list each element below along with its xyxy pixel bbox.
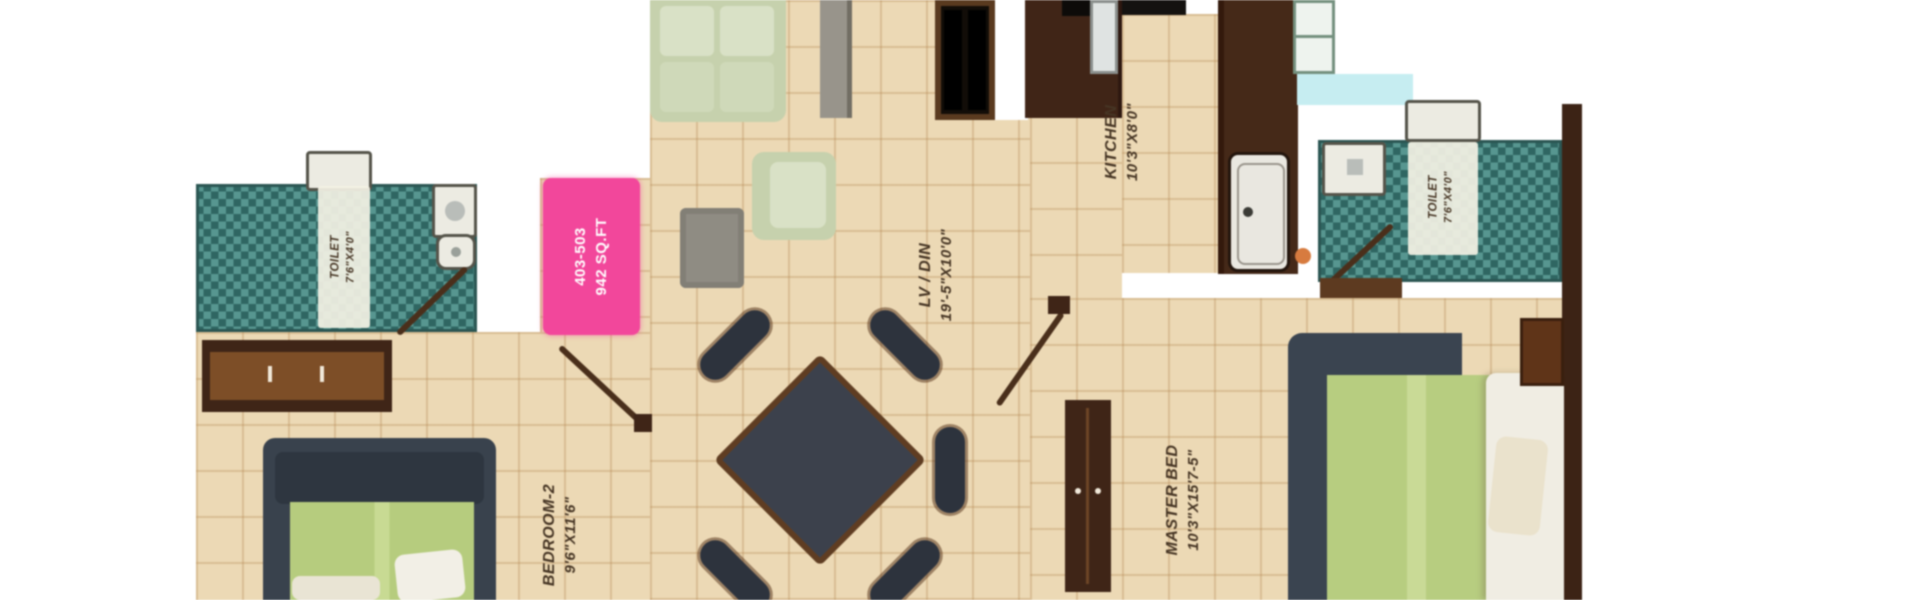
kitchen-appliance-black [1062,0,1090,16]
room-name: MASTER BED [1163,445,1184,556]
toilet-right-washbasin [1322,142,1386,196]
room-dims: 19'-5"X10'0" [937,229,957,321]
wardrobe-panel [210,352,384,400]
basin-bowl [1347,159,1363,175]
bedroom2-pillow [394,549,467,600]
utility-knob [1295,248,1311,264]
sofa-cushion [720,62,774,112]
sofa-cushion [720,6,774,56]
sink-faucet [1243,207,1253,217]
room-name: TOILET [328,235,343,279]
living-dining-label: LV / DIN 19'-5"X10'0" [916,229,956,321]
tv-screen [968,10,986,110]
bedroom2-label: BEDROOM-2 9'6"X11'6" [540,484,580,586]
master-nightstand [1520,318,1564,386]
room-name: LV / DIN [916,243,937,307]
room-dims: 10'3"X8'0" [1123,103,1143,181]
wardrobe-handle [1075,488,1081,494]
bedroom2-pillow [292,576,380,600]
right-wall [1562,104,1582,600]
master-wardrobe [1065,400,1111,592]
sofa-cushion [660,62,714,112]
door-panel [820,0,852,118]
toilet-left-washbasin [432,184,477,238]
master-pillow [1487,436,1549,537]
sofa-cushion [660,6,714,56]
armchair-cushion [770,162,826,228]
toilet-right-door-window [1405,100,1481,142]
unit-area: 942 SQ.FT [592,218,612,296]
room-name: BEDROOM-2 [540,484,561,586]
kitchen-label: KITCHEN 10'3"X8'0" [1102,103,1142,181]
room-dims: 7'6"X4'0" [1441,171,1455,223]
kitchen-window [1293,0,1335,74]
armchair [752,152,836,240]
wall-stub [1048,296,1070,314]
unit-badge: 403-503 942 SQ.FT [543,178,640,335]
room-name: KITCHEN [1102,105,1123,180]
room-name: TOILET [1426,175,1441,219]
tv-screen [944,10,962,110]
bedroom2-wardrobe [202,340,392,412]
kitchen-appliance-white [1090,0,1118,74]
sofa [650,0,786,122]
wardrobe-handle [1095,488,1101,494]
unit-badge-text: 403-503 942 SQ.FT [513,208,670,305]
unit-highlight-bar [1297,74,1413,105]
wc-lid [451,247,461,257]
dining-chair [935,427,965,513]
coffee-table [680,208,744,288]
master-window-ledge [1320,278,1402,298]
toilet-right-label: TOILET 7'6"X4'0" [1426,171,1455,223]
wardrobe-handle [320,366,324,382]
toilet-left-label: TOILET 7'6"X4'0" [328,231,357,283]
bed-fold [275,452,484,504]
wardrobe-handle [268,366,272,382]
wardrobe-divider [1086,408,1089,584]
kitchen-cooktop-counter [1122,0,1186,15]
kitchen-tall-cabinet [1025,0,1122,118]
master-bedroom-label: MASTER BED 10'3"X15'7-5" [1163,445,1203,556]
wall-gap [995,0,1028,120]
toilet-left-wc [436,234,476,270]
wall-stub [634,414,652,432]
kitchen-sink [1228,152,1290,272]
floor-plan-image: TOILET 7'6"X4'0" BEDROOM-2 9'6"X11'6" 40… [0,0,1920,600]
room-dims: 10'3"X15'7-5" [1184,449,1204,550]
unit-numbers: 403-503 [571,227,591,286]
tv-unit [935,0,995,120]
window-mullion [1296,35,1332,38]
toilet-left-door-window [306,151,372,191]
basin-bowl [445,201,465,221]
room-dims: 9'6"X11'6" [561,497,581,574]
room-dims: 7'6"X4'0" [343,231,357,283]
